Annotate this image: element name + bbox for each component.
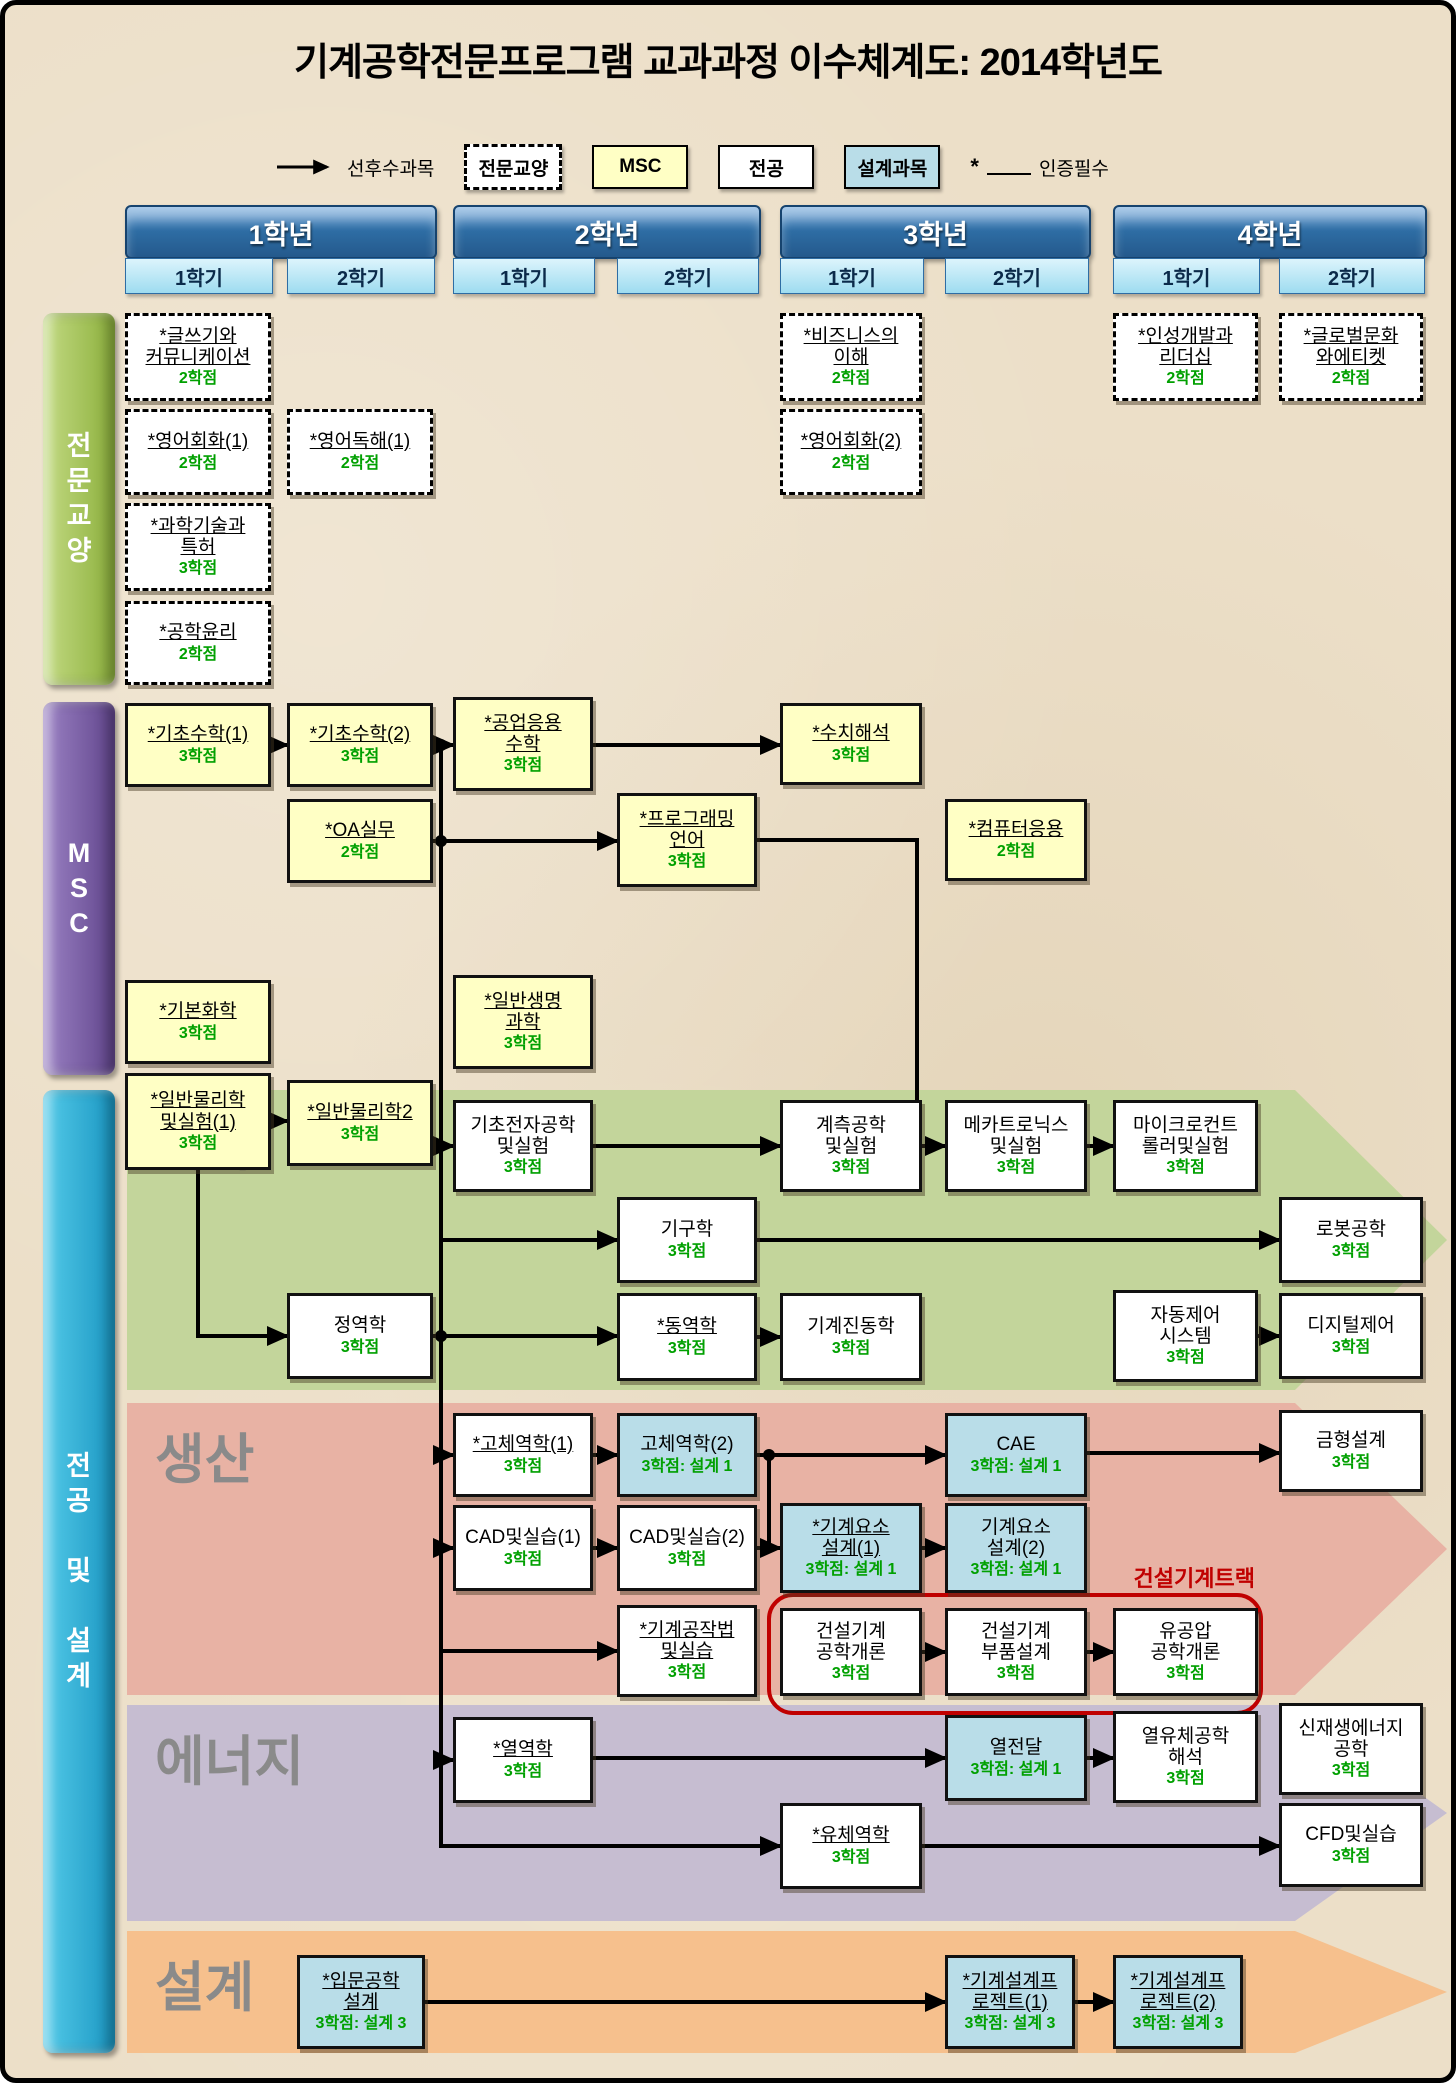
- course-credit: 3학점: [832, 1665, 870, 1683]
- semester-header-1-1: 1학기: [125, 258, 273, 294]
- semester-header-3-1: 1학기: [780, 258, 924, 294]
- legend-prerequisite: 선후수과목: [275, 154, 434, 181]
- junction-dot-0: [435, 739, 447, 751]
- course-title: 신재생에너지 공학: [1299, 1718, 1404, 1761]
- course-box-electronics: 기초전자공학 및실험3학점: [453, 1100, 593, 1192]
- course-box-physics-1: *일반물리학 및실험(1)3학점: [125, 1073, 271, 1170]
- course-box-engineering-ethics: *공학윤리2학점: [125, 601, 271, 685]
- course-title: CAD및실습(1): [465, 1527, 581, 1548]
- course-credit: 3학점: [997, 1159, 1035, 1177]
- course-credit: 3학점: [668, 853, 706, 871]
- course-credit: 3학점: [668, 1551, 706, 1569]
- course-credit: 2학점: [341, 844, 379, 862]
- course-title: 마이크로컨트 롤러및실험: [1133, 1115, 1238, 1158]
- course-box-design-project-2: *기계설계프 로젝트(2)3학점: 설계 3: [1113, 1955, 1243, 2049]
- course-credit: 2학점: [1332, 370, 1370, 388]
- course-credit: 3학점: [668, 1664, 706, 1682]
- course-box-digital-control: 디지털제어3학점: [1279, 1293, 1423, 1379]
- course-box-mold-design: 금형설계3학점: [1279, 1410, 1423, 1492]
- course-box-construction-parts: 건설기계 부품설계3학점: [945, 1608, 1087, 1696]
- course-title: 열유체공학 해석: [1142, 1726, 1229, 1769]
- course-box-renewable: 신재생에너지 공학3학점: [1279, 1703, 1423, 1795]
- course-box-cae: CAE3학점: 설계 1: [945, 1413, 1087, 1497]
- legend: 선후수과목 전문교양 MSC 전공 설계과목 * 인증필수: [275, 143, 1205, 191]
- course-box-math-1: *기초수학(1)3학점: [125, 703, 271, 787]
- course-credit: 3학점: [832, 747, 870, 765]
- course-box-english-conv-1: *영어회화(1)2학점: [125, 409, 271, 495]
- course-title: *영어독해(1): [310, 431, 411, 452]
- course-box-hydraulics: 유공압 공학개론3학점: [1113, 1608, 1258, 1696]
- course-box-machining: *기계공작법 및실습3학점: [617, 1605, 757, 1697]
- course-box-chemistry: *기본화학3학점: [125, 980, 271, 1064]
- course-title: 정역학: [334, 1315, 386, 1336]
- course-box-eng-math: *공업응용 수학3학점: [453, 697, 593, 791]
- course-title: 계측공학 및실험: [816, 1115, 886, 1158]
- band-label-design: 설계: [155, 1943, 254, 2022]
- course-title: 금형설계: [1316, 1430, 1386, 1451]
- course-title: 건설기계 공학개론: [816, 1621, 886, 1664]
- course-box-cad-2: CAD및실습(2)3학점: [617, 1505, 757, 1591]
- course-title: *OA실무: [325, 820, 395, 841]
- course-title: *고체역학(1): [473, 1434, 574, 1455]
- course-title: *수치해석: [812, 723, 889, 744]
- course-box-physics-2: *일반물리학23학점: [287, 1080, 433, 1166]
- course-box-robotics: 로봇공학3학점: [1279, 1197, 1423, 1283]
- course-box-vibration: 기계진동학3학점: [780, 1293, 922, 1381]
- course-credit: 2학점: [1166, 370, 1204, 388]
- course-credit: 3학점: 설계 3: [316, 2015, 407, 2033]
- course-title: *글쓰기와 커뮤니케이션: [146, 326, 251, 369]
- course-box-construction-intro: 건설기계 공학개론3학점: [780, 1608, 922, 1696]
- course-credit: 3학점: [504, 1458, 542, 1476]
- course-credit: 3학점: [668, 1243, 706, 1261]
- course-box-fluid-mechanics: *유체역학3학점: [780, 1803, 922, 1889]
- course-title: 유공압 공학개론: [1151, 1621, 1221, 1664]
- course-box-cfd: CFD및실습3학점: [1279, 1803, 1423, 1887]
- underline-icon: [987, 159, 1031, 175]
- asterisk-icon: *: [970, 154, 979, 180]
- course-credit: 2학점: [341, 455, 379, 473]
- course-title: 건설기계 부품설계: [981, 1621, 1051, 1664]
- course-credit: 3학점: [668, 1340, 706, 1358]
- band-label-energy: 에너지: [155, 1717, 304, 1796]
- course-credit: 3학점: [832, 1849, 870, 1867]
- course-box-leadership: *인성개발과 리더십2학점: [1113, 313, 1258, 401]
- course-box-solid-1: *고체역학(1)3학점: [453, 1413, 593, 1497]
- junction-dot-1: [435, 835, 447, 847]
- course-box-computer-app: *컴퓨터응용2학점: [945, 799, 1087, 881]
- course-box-thermodynamics: *열역학3학점: [453, 1717, 593, 1803]
- course-box-design-project-1: *기계설계프 로젝트(1)3학점: 설계 3: [945, 1955, 1075, 2049]
- course-title: 자동제어 시스템: [1151, 1305, 1221, 1348]
- legend-major-box: 전공: [718, 145, 814, 189]
- course-title: *과학기술과 특허: [151, 516, 246, 559]
- year-header-2: 2학년: [453, 205, 761, 259]
- course-box-sci-patent: *과학기술과 특허3학점: [125, 503, 271, 591]
- course-credit: 3학점: [179, 1025, 217, 1043]
- course-title: 기계진동학: [807, 1316, 894, 1337]
- course-title: *동역학: [657, 1316, 717, 1337]
- course-title: *공업응용 수학: [484, 713, 561, 756]
- course-box-measurement: 계측공학 및실험3학점: [780, 1100, 922, 1192]
- semester-header-1-2: 2학기: [287, 258, 435, 294]
- semester-header-3-2: 2학기: [945, 258, 1089, 294]
- course-credit: 3학점: 설계 3: [1133, 2015, 1224, 2033]
- course-credit: 2학점: [179, 455, 217, 473]
- course-box-english-conv-2: *영어회화(2)2학점: [780, 409, 922, 495]
- junction-dot-2: [435, 1330, 447, 1342]
- course-credit: 3학점: [1166, 1665, 1204, 1683]
- legend-certification: * 인증필수: [970, 154, 1108, 181]
- course-title: *기계공작법 및실습: [640, 1620, 735, 1663]
- course-box-auto-control: 자동제어 시스템3학점: [1113, 1290, 1258, 1382]
- course-box-intro-design: *입문공학 설계3학점: 설계 3: [297, 1955, 425, 2049]
- course-title: 고체역학(2): [640, 1434, 733, 1455]
- semester-header-2-2: 2학기: [617, 258, 759, 294]
- course-credit: 3학점: [832, 1340, 870, 1358]
- course-credit: 3학점: [341, 1339, 379, 1357]
- course-box-oa: *OA실무2학점: [287, 799, 433, 883]
- course-credit: 3학점: 설계 1: [642, 1458, 733, 1476]
- course-credit: 3학점: [1332, 1848, 1370, 1866]
- page-title: 기계공학전문프로그램 교과과정 이수체계도: 2014학년도: [5, 31, 1451, 86]
- course-box-machine-elem-2: 기계요소 설계(2)3학점: 설계 1: [945, 1503, 1087, 1593]
- course-credit: 3학점: [1332, 1454, 1370, 1472]
- sidebar-msc: M S C: [43, 702, 115, 1075]
- curriculum-flowchart: 기계공학전문프로그램 교과과정 이수체계도: 2014학년도 선후수과목 전문교…: [0, 0, 1456, 2083]
- course-title: CAE: [996, 1434, 1035, 1455]
- year-header-4: 4학년: [1113, 205, 1427, 259]
- semester-header-2-1: 1학기: [453, 258, 595, 294]
- year-header-1: 1학년: [125, 205, 437, 259]
- course-title: *비즈니스의 이해: [804, 326, 899, 369]
- course-credit: 2학점: [179, 646, 217, 664]
- course-credit: 2학점: [179, 370, 217, 388]
- course-credit: 3학점: 설계 1: [971, 1458, 1062, 1476]
- legend-ge-box: 전문교양: [464, 144, 562, 190]
- course-title: 기구학: [661, 1219, 713, 1240]
- prerequisite-arrow-12: [198, 1170, 287, 1336]
- course-box-business: *비즈니스의 이해2학점: [780, 313, 922, 401]
- course-title: *기초수학(2): [310, 724, 411, 745]
- legend-prerequisite-label: 선후수과목: [347, 154, 434, 181]
- course-title: *유체역학: [812, 1825, 889, 1846]
- course-credit: 3학점: [504, 1551, 542, 1569]
- course-credit: 3학점: [504, 1035, 542, 1053]
- course-credit: 3학점: [179, 1135, 217, 1153]
- course-title: *영어회화(2): [801, 431, 902, 452]
- course-box-numerical: *수치해석3학점: [780, 703, 922, 785]
- course-credit: 3학점: [832, 1159, 870, 1177]
- semester-header-4-1: 1학기: [1113, 258, 1260, 294]
- course-box-solid-2: 고체역학(2)3학점: 설계 1: [617, 1413, 757, 1497]
- course-box-programming: *프로그래밍 언어3학점: [617, 793, 757, 887]
- course-box-math-2: *기초수학(2)3학점: [287, 703, 433, 787]
- course-title: *일반물리학 및실험(1): [151, 1090, 246, 1133]
- course-credit: 3학점: [1332, 1762, 1370, 1780]
- course-credit: 3학점: [504, 1763, 542, 1781]
- course-credit: 3학점: [1332, 1243, 1370, 1261]
- course-box-dynamics: *동역학3학점: [617, 1293, 757, 1381]
- legend-certification-label: 인증필수: [1039, 154, 1109, 181]
- course-credit: 3학점: [1166, 1349, 1204, 1367]
- course-box-mechatronics: 메카트로닉스 및실험3학점: [945, 1100, 1087, 1192]
- sidebar-major-and-design: 전 공 및 설 계: [43, 1090, 115, 2053]
- course-credit: 3학점: [997, 1665, 1035, 1683]
- course-box-life-science: *일반생명 과학3학점: [453, 975, 593, 1069]
- course-title: *열역학: [493, 1739, 553, 1760]
- course-credit: 3학점: 설계 1: [806, 1561, 897, 1579]
- course-box-global-culture: *글로벌문화 와에티켓2학점: [1279, 313, 1423, 401]
- arrow-icon: [275, 158, 339, 176]
- course-box-kinematics: 기구학3학점: [617, 1197, 757, 1283]
- course-title: *공학윤리: [159, 622, 236, 643]
- course-title: 기계요소 설계(2): [981, 1517, 1051, 1560]
- course-title: 기초전자공학 및실험: [471, 1115, 576, 1158]
- course-credit: 3학점: [1166, 1770, 1204, 1788]
- course-credit: 3학점: [179, 560, 217, 578]
- course-credit: 3학점: 설계 1: [971, 1561, 1062, 1579]
- course-title: *일반물리학2: [307, 1102, 412, 1123]
- sidebar-general-education: 전 문 교 양: [43, 313, 115, 685]
- band-label-prod: 생산: [155, 1415, 254, 1494]
- course-credit: 3학점: [504, 757, 542, 775]
- course-box-cad-1: CAD및실습(1)3학점: [453, 1505, 593, 1591]
- course-title: 로봇공학: [1316, 1219, 1386, 1240]
- course-title: 열전달: [990, 1737, 1042, 1758]
- course-title: *입문공학 설계: [322, 1971, 399, 2014]
- course-credit: 3학점: 설계 3: [965, 2015, 1056, 2033]
- course-credit: 3학점: [341, 748, 379, 766]
- course-box-english-read-1: *영어독해(1)2학점: [287, 409, 433, 495]
- course-title: *글로벌문화 와에티켓: [1304, 326, 1399, 369]
- legend-msc-box: MSC: [592, 145, 688, 189]
- legend-design-box: 설계과목: [844, 145, 940, 189]
- course-credit: 2학점: [832, 455, 870, 473]
- course-box-heat-transfer: 열전달3학점: 설계 1: [945, 1715, 1087, 1801]
- course-box-machine-elem-1: *기계요소 설계(1)3학점: 설계 1: [780, 1503, 922, 1593]
- course-title: 디지털제어: [1307, 1315, 1394, 1336]
- course-credit: 3학점: [1166, 1159, 1204, 1177]
- course-credit: 2학점: [832, 370, 870, 388]
- course-title: *기계요소 설계(1): [812, 1517, 889, 1560]
- junction-dot-3: [763, 1449, 775, 1461]
- course-credit: 3학점: 설계 1: [971, 1761, 1062, 1779]
- course-title: *기초수학(1): [148, 724, 249, 745]
- course-credit: 3학점: [341, 1126, 379, 1144]
- course-box-thermofluid: 열유체공학 해석3학점: [1113, 1711, 1258, 1803]
- course-title: *프로그래밍 언어: [640, 809, 735, 852]
- course-box-statics: 정역학3학점: [287, 1293, 433, 1379]
- course-title: CAD및실습(2): [629, 1527, 745, 1548]
- course-credit: 2학점: [997, 843, 1035, 861]
- course-credit: 3학점: [504, 1159, 542, 1177]
- course-title: *기본화학: [159, 1001, 236, 1022]
- course-title: 메카트로닉스 및실험: [964, 1115, 1069, 1158]
- course-title: *일반생명 과학: [484, 991, 561, 1034]
- course-title: *기계설계프 로젝트(2): [1131, 1971, 1226, 2014]
- year-header-3: 3학년: [780, 205, 1091, 259]
- course-box-microcontroller: 마이크로컨트 롤러및실험3학점: [1113, 1100, 1258, 1192]
- course-title: *영어회화(1): [148, 431, 249, 452]
- course-box-writing: *글쓰기와 커뮤니케이션2학점: [125, 313, 271, 401]
- course-credit: 3학점: [1332, 1339, 1370, 1357]
- course-credit: 3학점: [179, 748, 217, 766]
- course-title: CFD및실습: [1305, 1824, 1397, 1845]
- semester-header-4-2: 2학기: [1279, 258, 1425, 294]
- course-title: *인성개발과 리더십: [1138, 326, 1233, 369]
- course-title: *컴퓨터응용: [969, 819, 1064, 840]
- course-title: *기계설계프 로젝트(1): [963, 1971, 1058, 2014]
